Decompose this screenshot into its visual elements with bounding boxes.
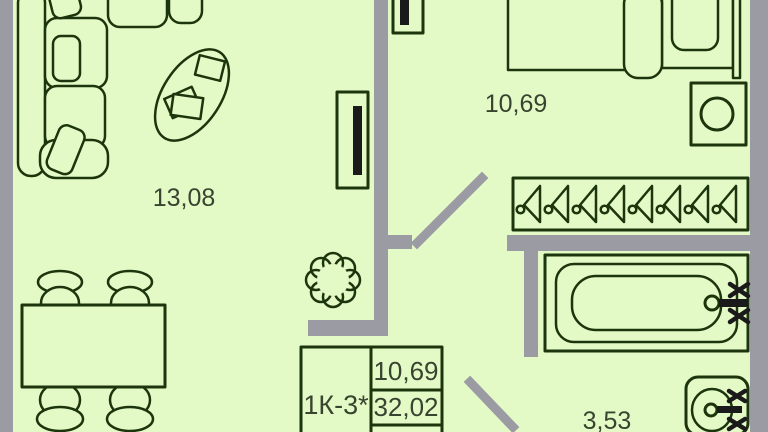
wall-left <box>0 0 13 432</box>
chair-icon <box>107 383 153 431</box>
wall-bathroom-left <box>524 251 538 357</box>
wall-door-stub <box>374 235 412 249</box>
sink-icon <box>686 377 748 432</box>
wall-center <box>374 0 388 336</box>
tv-living-icon <box>337 92 368 188</box>
wall-arm <box>308 320 388 336</box>
tv-bedroom-icon <box>393 0 423 33</box>
floor-plan-canvas: 13,08 10,69 <box>0 0 768 432</box>
table-row-value: 10,69 <box>373 356 438 386</box>
living-room-area-label: 13,08 <box>153 184 216 212</box>
nightstand-lamp-icon <box>691 83 746 145</box>
table-row-value: 32,02 <box>373 392 438 422</box>
bathroom-area-label: 3,53 <box>583 407 632 432</box>
chair-icon <box>37 383 83 431</box>
faucet-icon <box>719 299 748 307</box>
table-row-value: 33,73 <box>373 428 438 432</box>
floor-plan: 13,08 10,69 <box>0 0 768 432</box>
wall-right <box>750 0 768 432</box>
bathtub-icon <box>545 255 748 351</box>
bedroom-area-label: 10,69 <box>485 90 548 118</box>
wall-bathroom-top <box>507 235 768 251</box>
wardrobe-icon <box>513 178 748 230</box>
unit-type-label: 1К-3* <box>303 390 369 420</box>
dining-table-icon <box>22 305 165 387</box>
area-info-table: 1К-3* 10,69 32,02 33,73 <box>301 347 442 432</box>
faucet-icon <box>717 406 742 413</box>
